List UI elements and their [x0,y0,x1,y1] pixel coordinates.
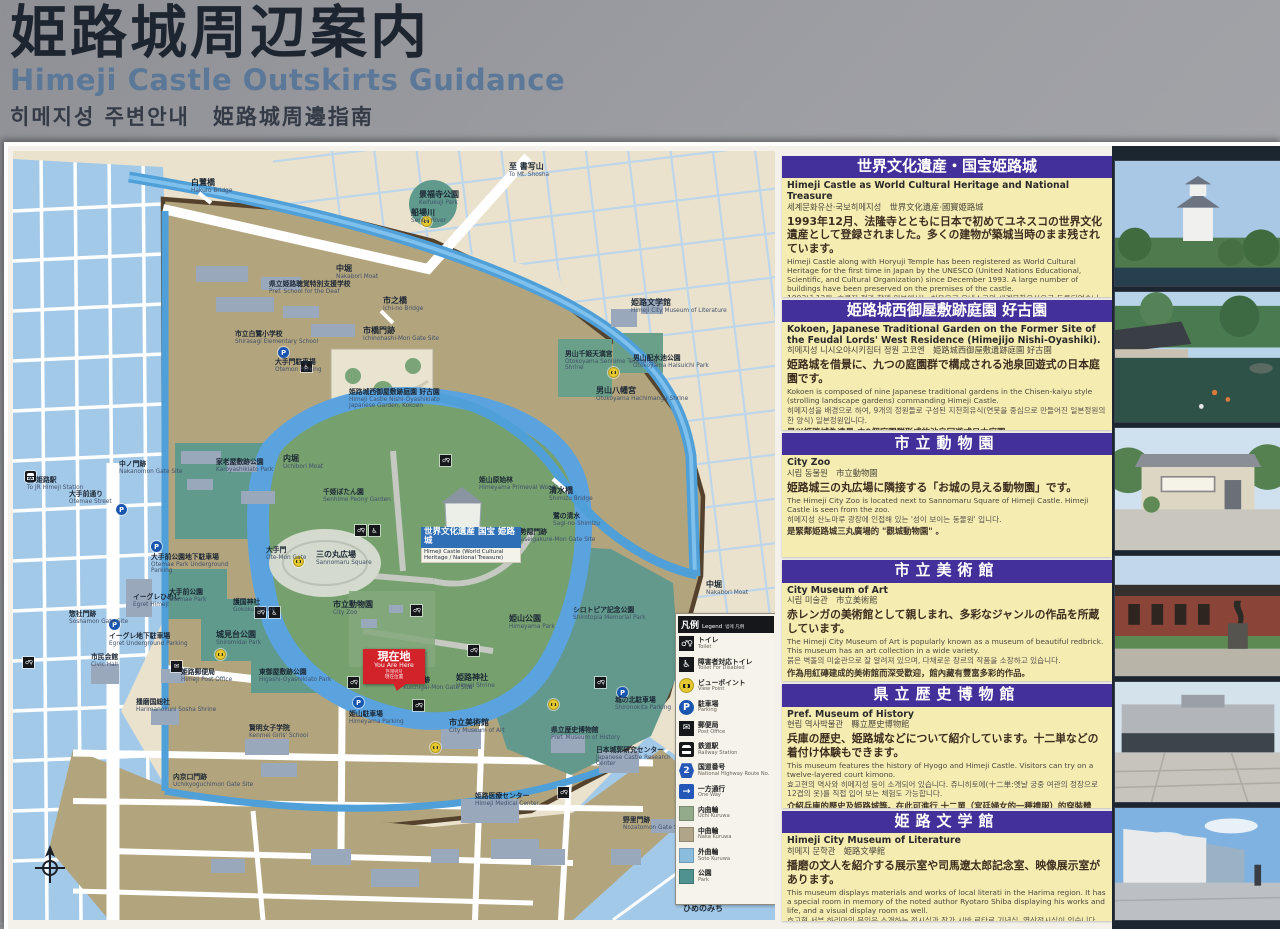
map-label: 城の北駐車場 Shironokita Parking [615,697,671,711]
info-panel: 姫路文学館 Himeji City Museum of Literature 히… [782,811,1112,921]
info-panel-header: 県立歴史博物館 [782,684,1112,706]
info-text-en: The Himeji City Museum of Art is popular… [787,637,1107,655]
photo-column [1112,146,1280,929]
info-text-kr: 붉은 벽돌의 미술관으로 잘 알려져 있으며, 다채로운 장르의 작품을 소장하… [787,656,1107,665]
info-text-en: Kokoen is composed of nine Japanese trad… [787,387,1107,405]
map-label: 男山配水池公園 Otokoyama Haisuichi Park [633,355,709,369]
map-symbol-icon [116,504,127,515]
legend-symbol-icon [679,721,694,736]
info-text-en: This museum features the history of Hyog… [787,761,1107,779]
map-label: イーグレ地下駐車場 Egret Underground Parking [109,633,188,647]
map-symbol-icon [548,699,559,710]
map-label: 中堀 Nakabori Moat [336,265,378,280]
map-label: 播磨国総社 Harimanokuni Sosha Shrine [136,699,216,713]
map-label: 千姫ぼたん園 Senhime Peony Garden [323,489,391,503]
info-text-zh: 是緊鄰姫路城三丸廣場的 "觀城動物園" 。 [787,526,1107,537]
legend-symbol-icon [679,700,694,715]
info-panel: 世界文化遺産・国宝姫路城 Himeji Castle as World Cult… [782,156,1112,297]
legend-item: ビューポイント View Point [678,675,774,696]
map-symbol-icon [595,677,606,688]
photo-himeji-museum-of-literature [1115,808,1280,920]
map-label: 北勢隠門跡 Kitaseigakure-Mon Gate Site [513,529,595,543]
you-are-here-marker: 現在地 You Are Here 현재위치 現在位置 [363,649,425,684]
info-text-zh: 是以姫路城為遠景·由9個庭園群形成的池泉回遊式日本庭園· [787,427,1107,430]
map-label: 景福寺公園 Keifukuji Park [419,191,459,206]
map-label: 姫路文学館 Himeji City Museum of Literature [631,299,727,314]
map-label: 姫山公園 Himeyama Park [509,615,555,630]
map-label: 鷺の清水 Sagi-no-Shimizu [553,513,600,527]
himeji-castle-label: 世界文化遺産 国宝 姫路城 Himeji Castle (World Cultu… [421,527,521,563]
info-text-en: Himeji Castle along with Horyuji Temple … [787,257,1107,293]
info-panel: 市立動物園 City Zoo 시립 동물원 市立動物園 姫路城三の丸広場に隣接す… [782,433,1112,558]
photo-city-zoo [1115,428,1280,550]
map-label: 市立美術館 City Museum of Art [449,719,505,734]
map-label: 家老屋敷跡公園 Karoyashikiato Park [216,459,273,473]
legend-symbol-icon [679,657,694,672]
info-panel: 県立歴史博物館 Pref. Museum of History 현립 역사박물관… [782,684,1112,808]
info-panel: 市立美術館 City Museum of Art 시립 미술관 市立美術館 赤レ… [782,560,1112,681]
legend-item: 鉄道駅 Railway Station [678,739,774,760]
page-title-en: Himeji Castle Outskirts Guidance [10,63,770,97]
info-column: 世界文化遺産・国宝姫路城 Himeji Castle as World Cult… [782,156,1112,921]
info-title-kr: 현립 역사박물관 縣立歷史博物館 [787,720,1107,730]
info-panel: 姫路城西御屋敷跡庭園 好古園 Kokoen, Japanese Traditio… [782,300,1112,430]
legend-symbol-icon [679,678,694,693]
legend-item: 内曲輪 Uchi Kuruwa [678,803,774,824]
area-map: 白鷺橋 Hakuro Bridge 船場川 Senba River 至 書写山 … [13,151,775,920]
photo-city-museum-of-art [1115,556,1280,676]
legend-items: トイレ Toilet 障害者対応トイレ Toilet For Disabled … [678,633,774,887]
info-text-en: The Himeji City Zoo is located next to S… [787,496,1107,514]
info-title-kr: 세계문화유산·국보히메지성 世界文化遺産·國寶姫路城 [787,203,1107,213]
map-label: 男山八幡宮 Otokoyama Hachimangu Shrine [596,387,688,402]
map-label: 至 姫路駅 To JR Himeji Station [27,477,83,491]
map-label: 内堀 Uchibori Moat [283,455,323,470]
map-label: 姫路城西御屋敷跡庭園 好古園 Himeji Castle Nishi-Oyash… [349,389,445,409]
info-text-ja: 播磨の文人を紹介する展示室や司馬遼太郎記念室、映像展示室があります。 [787,859,1107,886]
info-text-kr: 히메지성을 배경으로 하여, 9개의 정원들로 구성된 지천회유식(연못을 중심… [787,406,1107,425]
guidance-board: 白鷺橋 Hakuro Bridge 船場川 Senba River 至 書写山 … [4,142,1280,929]
map-label: 大手門 Ote-Mon Gate [266,547,306,561]
map-symbol-icon [430,742,441,753]
map-symbol-icon [468,645,479,656]
legend-symbol-icon [679,636,694,651]
legend-item: 外曲輪 Soto Kuruwa [678,845,774,866]
map-label: 市民会館 Civic Hall [91,654,118,668]
compass-icon [33,843,67,891]
info-panel-header: 姫路城西御屋敷跡庭園 好古園 [782,300,1112,322]
map-graphic [13,151,775,920]
map-label: 大手前通り Otemae Street [69,491,112,505]
legend-symbol-icon [679,784,694,799]
legend-item: 公園 Park [678,866,774,887]
info-panel-header: 市立動物園 [782,433,1112,455]
map-label: 県立歴史博物館 Pref. Museum of History [551,727,620,741]
info-title-kr: 시립 미술관 市立美術館 [787,596,1107,606]
map-symbol-icon [355,525,366,536]
map-symbol-icon [353,697,364,708]
map-symbol-icon [278,347,289,358]
page-title-krzh: 히메지성 주변안내 姫路城周邊指南 [10,101,770,131]
photographed-guidance-sign: { "sign": { "title_ja": "姫路城周辺案内", "titl… [0,0,1280,925]
info-title-en: City Zoo [787,458,1107,469]
legend-symbol-icon [679,763,694,778]
map-label: 船場川 Senba River [411,209,446,224]
map-label: 市立白鷺小学校 Shirasagi Elementary School [235,331,318,345]
legend-item: 一方通行 One Way [678,781,774,802]
info-text-en: This museum displays materials and works… [787,888,1107,915]
map-label: 至 書写山 To Mt. Shosha [509,163,549,178]
map-label: 市之橋 Ichi-no Bridge [383,297,423,312]
info-text-ja: 兵庫の歴史、姫路城などについて紹介しています。十二単などの着付け体験もできます。 [787,732,1107,759]
map-label: 内京口門跡 Uchikyoguchimon Gate Site [173,774,253,788]
legend-header: 凡例 Legend 범례 凡例 [678,616,774,633]
map-symbol-icon [369,525,380,536]
map-label: 大手前公園 Otemae Park [169,589,207,603]
info-text-zh: 作為用紅磚建成的美術館而深受歡迎，館內藏有豐富多彩的作品。 [787,668,1107,679]
map-label: 三の丸広場 Sannomaru Square [316,551,372,566]
info-text-ja: 姫路城三の丸広場に隣接する「お城の見える動物園」です。 [787,481,1107,494]
map-label: シロトピア記念公園 Shirotopia Memorial Park [573,607,646,621]
map-label: 市立動物園 City Zoo [333,601,373,616]
map-label: 白鷺橋 Hakuro Bridge [191,179,232,194]
map-label: 東御屋敷跡公園 Higashi-Oyashikiato Park [259,669,331,683]
info-panel-header: 姫路文学館 [782,811,1112,833]
info-title-en: Kokoen, Japanese Traditional Garden on t… [787,325,1107,346]
info-text-kr: 효고현 서부 하리마의 문인을 소개하는 전시실과 작가 시바 료타로 기념실,… [787,916,1107,921]
info-title-kr: 시립 동물원 市立動物園 [787,469,1107,479]
info-text-ja: 1993年12月、法隆寺とともに日本で初めてユネスコの世界文化遺産として登録され… [787,215,1107,255]
legend-item: トイレ Toilet [678,633,774,654]
map-symbol-icon [411,605,422,616]
map-label: 中堀 Nakabori Moat [706,581,748,596]
map-label: 護国神社 Gokoku Shrine [233,599,275,613]
map-symbol-icon [215,649,226,660]
map-label: 姫路郵便局 Himeji Post Office [181,669,232,683]
map-symbol-icon [558,787,569,798]
map-label: 姫山原始林 Himeyama Primeval Woods [479,477,558,491]
map-label: 市橋門跡 Ichinohashi-Mon Gate Site [363,327,439,342]
map-label: 惣社門跡 Soshamon Gate Site [69,611,128,625]
info-text-ja: 赤レンガの美術館として親しまれ、多彩なジャンルの作品を所蔵しています。 [787,608,1107,635]
legend-item: 駐車場 Parking [678,697,774,718]
legend-item: 障害者対応トイレ Toilet For Disabled [678,654,774,675]
map-label: 県立姫路聴覚特別支援学校 Pref. School for the Deaf [269,281,351,295]
photo-pref-museum-of-history [1115,682,1280,802]
info-title-en: Himeji Castle as World Cultural Heritage… [787,181,1107,202]
map-label: 姫路医療センター Himeji Medical Center [475,793,539,807]
legend-symbol-icon [679,806,694,821]
info-text-zh: 介紹兵庫的歷史及姫路城等。在此可進行 十二單（宮廷婦女的一種禮服）的穿裝體驗。 [787,801,1107,808]
info-panel-header: 市立美術館 [782,560,1112,582]
map-symbol-icon [151,541,162,552]
legend-symbol-icon [679,848,694,863]
legend-symbol-icon [679,869,694,884]
info-text-kr: 효고현의 역사와 히메지성 등이 소개되어 있습니다. 쥬니히토에(十二単:옛날… [787,780,1107,799]
map-symbol-icon [23,657,34,668]
map-label: ひめのみち [683,905,723,914]
map-symbol-icon [440,455,451,466]
sign-header: 姫路城周辺案内 Himeji Castle Outskirts Guidance… [10,2,770,131]
info-text-ja: 姫路城を借景に、九つの庭園群で構成される池泉回遊式の日本庭園です。 [787,358,1107,385]
map-legend: 凡例 Legend 범례 凡例 トイレ Toilet 障害者対応トイレ [675,613,775,905]
map-label: 中ノ門跡 Nakanomon Gate Site [119,461,182,475]
photo-kokoen-garden [1115,292,1280,422]
legend-symbol-icon [679,827,694,842]
map-label: 大手前公園地下駐車場 Otemae Park Underground Parki… [151,554,247,574]
info-title-kr: 히메지성 니시오야시키집터 정원 고코엔 姫路城西御屋敷遺跡庭園 好古園 [787,346,1107,356]
info-title-kr: 히메지 문학관 姫路文學館 [787,847,1107,857]
map-label: 賢明女子学院 Kenmei Girls' School [249,725,308,739]
map-symbol-icon [348,677,359,688]
map-label: 姫山駐車場 Himeyama Parking [349,711,404,725]
photo-himeji-castle [1115,161,1280,286]
map-label: 清水橋 Shimizu Bridge [549,487,593,502]
info-text-kr: 1993년 12월, 호류지 절과 함께 일본에서는 처음으로 유네스코의 세계… [787,294,1107,297]
page-title-ja: 姫路城周辺案内 [10,2,770,65]
info-panel-header: 世界文化遺産・国宝姫路城 [782,156,1112,178]
legend-item: 国道番号 National Highway Route No. [678,760,774,781]
legend-item: 中曲輪 Naka Kuruwa [678,824,774,845]
map-label: 城見台公園 Shiromidai Park [216,631,261,646]
legend-symbol-icon [679,742,694,757]
map-label: 大手門駐車場 Otemon Parking [275,359,322,373]
map-symbol-icon [413,700,424,711]
info-text-kr: 히메지성 산노마루 광장에 인접해 있는 '성이 보이는 동물원' 입니다. [787,515,1107,524]
legend-item: 郵便局 Post Office [678,718,774,739]
